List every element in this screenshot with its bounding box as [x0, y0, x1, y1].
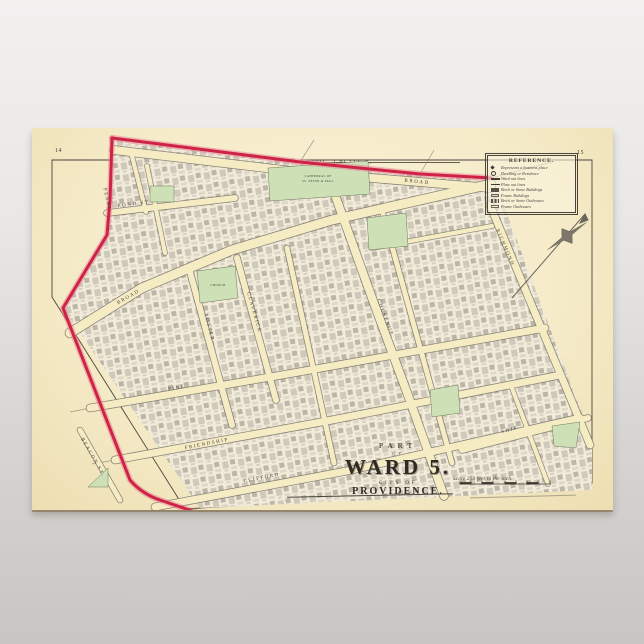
- legend-item: Frame Outhouses: [491, 204, 572, 210]
- plate-line-icon: [491, 184, 501, 185]
- title-part: PART: [312, 442, 484, 450]
- map-sheet: 14 15 VOL. 2-PLATE B.: [32, 128, 613, 510]
- scale-note: Scale 200 feet to the inch.: [453, 467, 563, 485]
- cathedral-label-line2: SS. PETER & PAUL: [302, 179, 334, 183]
- legend-label: Represents a business place: [501, 165, 548, 170]
- legend-label: Brick or Stone Buildings: [501, 187, 542, 192]
- legend-label: Ward out lines: [501, 176, 525, 181]
- business-place-icon: [491, 166, 501, 169]
- poster-mockup: { "plate": { "volume_label": "VOL. 2-PLA…: [0, 0, 644, 644]
- brick-outhouse-icon: [491, 199, 501, 203]
- legend-label: Frame Buildings: [501, 193, 529, 198]
- reference-title: REFERENCE.: [491, 158, 572, 164]
- legend-label: Plate out lines: [501, 182, 525, 187]
- frame-outhouse-icon: [491, 205, 501, 209]
- reference-legend: REFERENCE. Represents a business place D…: [487, 155, 576, 213]
- street-label-beacon: BEACON ST.: [79, 437, 106, 478]
- cathedral-label-line1: CATHEDRAL OF: [304, 174, 331, 178]
- legend-label: Frame Outhouses: [501, 204, 531, 209]
- frame-building-icon: [491, 194, 501, 198]
- church-label: CHURCH: [211, 283, 226, 287]
- legend-label: Dwelling or Residence: [501, 171, 539, 176]
- dwelling-icon: [491, 171, 501, 176]
- scale-text: Scale 200 feet to the inch.: [453, 477, 513, 482]
- legend-label: Brick or Stone Outhouses: [501, 198, 544, 203]
- ward-line-icon: [491, 178, 501, 180]
- brick-building-icon: [491, 188, 501, 192]
